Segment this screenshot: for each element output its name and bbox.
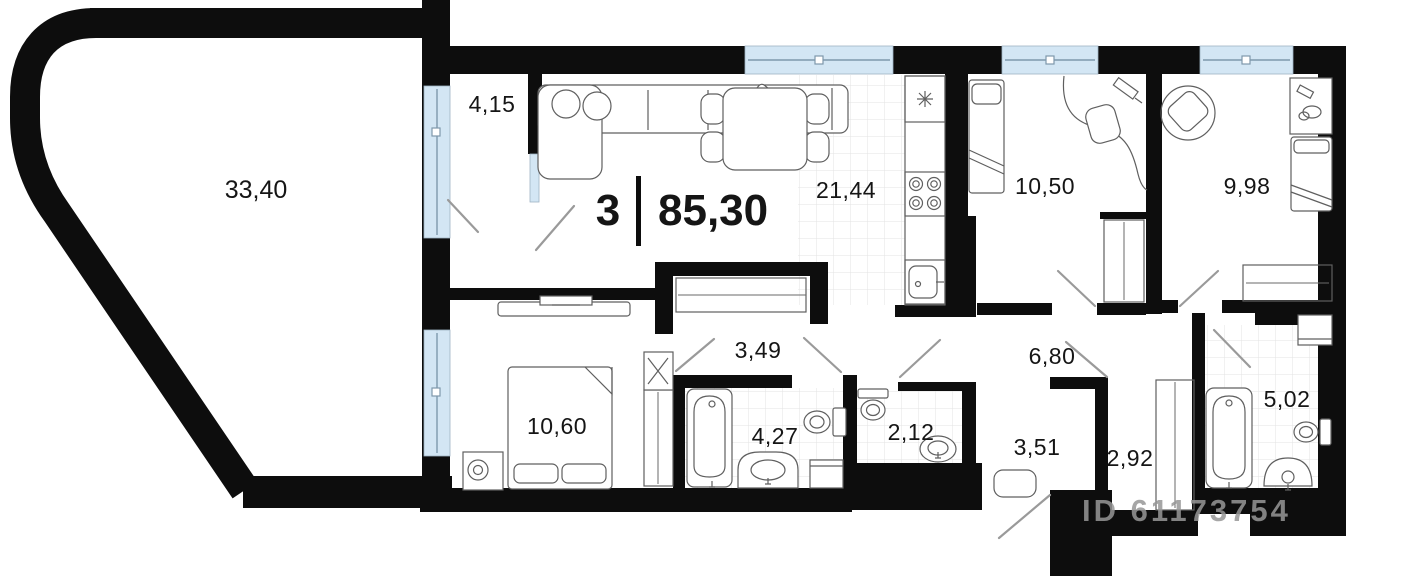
wc-door-leaf [900, 340, 940, 377]
laptop-icon [1113, 78, 1138, 99]
bedroom2-window [1200, 46, 1293, 74]
total-area: 85,30 [658, 186, 768, 235]
single-bed-1 [969, 80, 1004, 193]
washing-machine-bath2 [1298, 315, 1332, 345]
room-label-bedroom-2: 9,98 [1224, 173, 1271, 199]
snowflake-icon [917, 91, 933, 107]
toilet-2 [858, 389, 888, 420]
id-watermark: ID 61173754 [1082, 493, 1291, 528]
bedroom1-door-leaf [1058, 271, 1095, 306]
bedroom1-closet [1104, 220, 1144, 302]
room-label-bathroom-1: 4,27 [752, 423, 799, 449]
side-table [1290, 78, 1332, 134]
pouf [994, 470, 1036, 497]
apartment-summary: 3 85,30 [596, 176, 768, 246]
desk [1063, 76, 1147, 190]
room-label-corridor-2: 6,80 [1029, 343, 1076, 369]
room-label-entry-hall: 4,15 [469, 91, 516, 117]
bathroom1-door-leaf [804, 338, 841, 372]
bedroom2-door-leaf [1180, 271, 1218, 306]
single-bed-2 [1291, 137, 1332, 211]
bedroom3-window [424, 330, 450, 456]
room-label-wc: 2,12 [888, 419, 935, 445]
room-label-bedroom-3: 10,60 [527, 413, 587, 439]
corridor-wardrobe [676, 278, 806, 312]
bedroom3-door-leaf [676, 339, 714, 371]
kitchen-window [745, 46, 893, 74]
wardrobe-292-hangers [1156, 380, 1194, 510]
washing-machine-bedroom [463, 452, 503, 490]
bathtub-1 [687, 389, 732, 487]
floor-plan-svg: 33,40 4,15 21,44 10,50 9,98 3,49 6,80 10… [0, 0, 1416, 576]
room-label-hallway: 3,51 [1014, 434, 1061, 460]
terrace-door-window [424, 86, 450, 238]
desk-chair [1084, 103, 1123, 146]
terrace-walls [25, 0, 452, 512]
bedroom3-wardrobe [644, 352, 673, 486]
terrace-door-leaf [448, 200, 478, 232]
kitchen-counter [905, 76, 945, 305]
bath-cabinet [810, 460, 843, 488]
rooms-count: 3 [596, 186, 620, 235]
room-label-terrace: 33,40 [225, 176, 288, 204]
toilet-3 [1294, 419, 1331, 445]
entrance-door-leaf [999, 495, 1050, 538]
living-door-leaf [536, 206, 574, 250]
room-label-wardrobe: 2,92 [1107, 445, 1154, 471]
room-label-corridor-1: 3,49 [735, 337, 782, 363]
bathtub-2 [1206, 388, 1252, 488]
armchair [1161, 86, 1215, 140]
room-label-kitchen-living: 21,44 [816, 177, 876, 203]
room-label-bedroom-1: 10,50 [1015, 173, 1075, 199]
summary-divider [636, 176, 641, 246]
sink-1 [738, 452, 798, 488]
floor-plan-page: 33,40 4,15 21,44 10,50 9,98 3,49 6,80 10… [0, 0, 1416, 576]
bedroom1-window [1002, 46, 1098, 74]
room-label-bathroom-2: 5,02 [1264, 386, 1311, 412]
